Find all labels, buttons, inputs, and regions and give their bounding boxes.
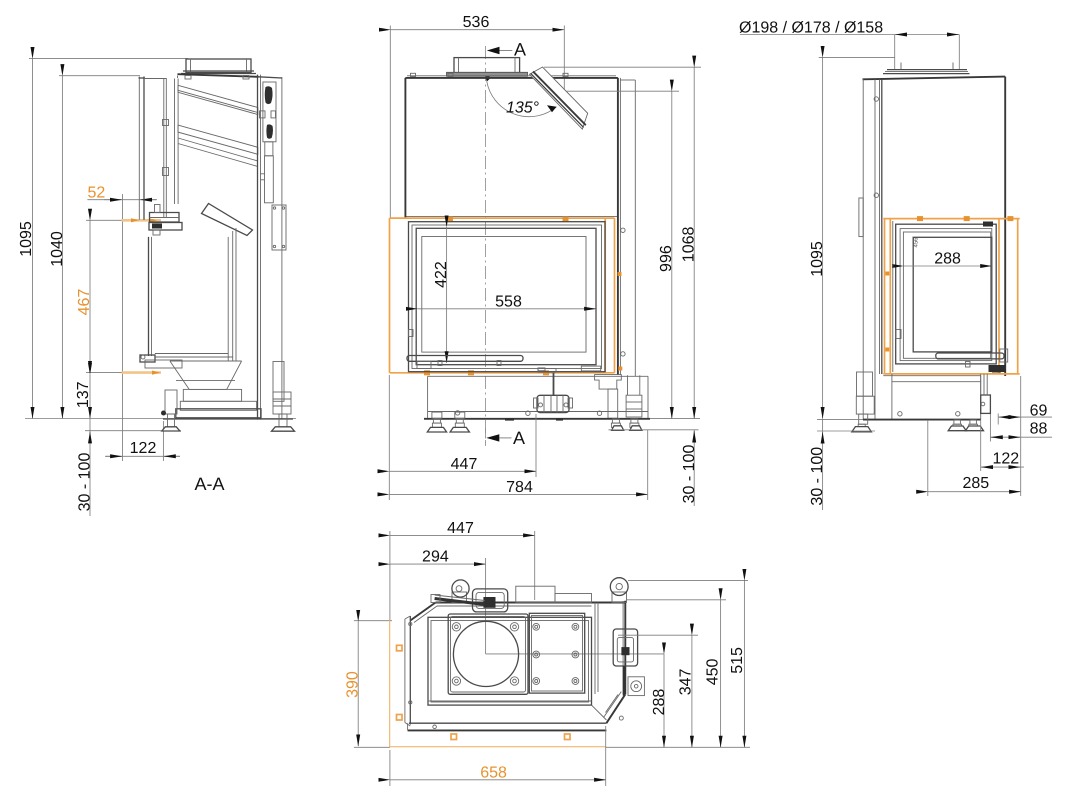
svg-text:1095: 1095 [809, 241, 826, 277]
svg-text:A: A [514, 39, 526, 59]
svg-text:996: 996 [658, 245, 675, 272]
svg-text:456: 456 [913, 237, 920, 248]
svg-text:536: 536 [463, 14, 490, 31]
svg-text:122: 122 [992, 450, 1019, 467]
svg-text:137: 137 [75, 381, 92, 408]
svg-text:515: 515 [729, 647, 746, 674]
svg-text:390: 390 [344, 671, 361, 698]
svg-text:558: 558 [495, 293, 522, 310]
svg-text:450: 450 [705, 658, 722, 685]
svg-text:88: 88 [1030, 421, 1048, 438]
svg-text:122: 122 [130, 440, 157, 457]
svg-text:658: 658 [480, 765, 507, 782]
svg-text:30 - 100: 30 - 100 [681, 445, 698, 504]
svg-text:30 - 100: 30 - 100 [809, 447, 826, 506]
svg-text:294: 294 [422, 549, 449, 566]
svg-text:1040: 1040 [49, 231, 66, 267]
svg-text:447: 447 [447, 520, 474, 537]
svg-text:285: 285 [962, 475, 989, 492]
svg-text:A-A: A-A [194, 474, 224, 494]
svg-text:784: 784 [506, 479, 533, 496]
svg-text:1095: 1095 [18, 221, 35, 257]
svg-text:347: 347 [677, 668, 694, 695]
svg-text:135°: 135° [506, 100, 540, 117]
svg-text:288: 288 [651, 689, 668, 716]
svg-text:52: 52 [88, 185, 106, 202]
svg-text:A: A [513, 428, 525, 448]
svg-text:69: 69 [1030, 403, 1048, 420]
svg-text:1068: 1068 [680, 227, 697, 263]
svg-text:288: 288 [934, 251, 961, 268]
svg-text:422: 422 [433, 261, 450, 288]
svg-text:Ø198 / Ø178 / Ø158: Ø198 / Ø178 / Ø158 [739, 20, 883, 37]
svg-text:467: 467 [76, 289, 93, 316]
svg-text:447: 447 [451, 456, 478, 473]
svg-text:30 - 100: 30 - 100 [77, 453, 94, 512]
